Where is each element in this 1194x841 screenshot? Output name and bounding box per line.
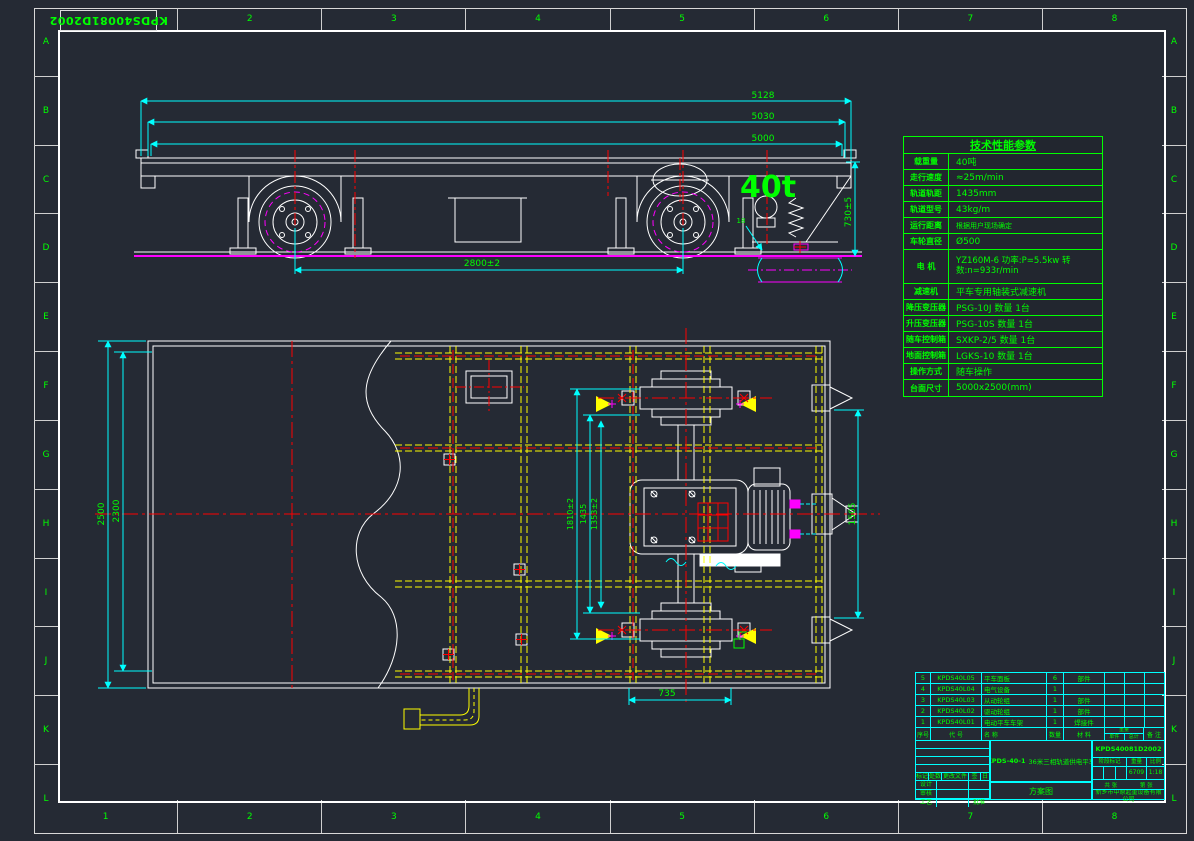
tech-row-label: 降压变压器	[904, 300, 949, 315]
sig-doc-label: 更改文件号	[942, 773, 969, 780]
bom-row-name: 电气设备	[982, 684, 1047, 694]
drawing-number: KPDS40081D2002	[1093, 741, 1164, 758]
title-block-info: KPDS40081D2002 阶段标记 重量 比例 6709 1:18 共 张 …	[1092, 740, 1165, 800]
sig-design-label: 设计	[916, 781, 937, 789]
zone-letter: I	[34, 559, 58, 628]
tech-row-value: PSG-10S 数量 1台	[949, 316, 1102, 331]
bom-row: 1KPDS40L01电动平车车架1焊接件	[915, 716, 1165, 727]
tech-row-label: 随车控制箱	[904, 332, 949, 347]
sig-sign-label: 签名	[969, 773, 981, 780]
tech-row-value: 43kg/m	[949, 202, 1102, 217]
bom-header-code: 代 号	[931, 728, 982, 740]
bom-row-note	[1145, 673, 1164, 683]
tech-row-label: 地面控制箱	[904, 348, 949, 363]
bom-header-no: 序号	[916, 728, 931, 740]
bom-header-name: 名 称	[982, 728, 1047, 740]
bom-row-w1	[1105, 695, 1125, 705]
bom-row-qty: 1	[1047, 695, 1064, 705]
tech-row-value: 5000x2500(mm)	[949, 380, 1102, 396]
stage-cells	[1093, 767, 1127, 779]
bom-row-code: KPDS40L03	[931, 695, 982, 705]
tech-row-value: 1435mm	[949, 186, 1102, 201]
zone-letter: E	[34, 283, 58, 352]
tech-row-label: 轨道轨距	[904, 186, 949, 201]
bom-row-material: 部件	[1064, 695, 1105, 705]
cad-sheet: 5128 5030 5000 2800±2 730±5 18 40t 2500 …	[0, 0, 1194, 841]
bom-row-code: KPDS40L05	[931, 673, 982, 683]
sheet-total: 共 张	[1104, 781, 1117, 789]
scheme-label: 方案图	[990, 782, 1092, 800]
bom-row-material: 部件	[1064, 706, 1105, 716]
tech-row: 走行速度≈25m/min	[904, 170, 1102, 186]
sig-date-label: 日期	[981, 773, 989, 780]
tech-table-title: 技术性能参数	[904, 137, 1102, 154]
bom-row-w1	[1105, 706, 1125, 716]
zone-number: 3	[322, 8, 466, 30]
weight-value: 6709	[1127, 767, 1147, 779]
zone-number: 5	[611, 800, 755, 833]
tech-row-label: 轨道型号	[904, 202, 949, 217]
bom-row-code: KPDS40L01	[931, 717, 982, 727]
drawing-title: 36米三相轨道供电平车	[1029, 756, 1092, 766]
tech-row-label: 走行速度	[904, 170, 949, 185]
zone-number: 4	[466, 800, 610, 833]
tech-row: 轨道轨距1435mm	[904, 186, 1102, 202]
bom-row-qty: 1	[1047, 706, 1064, 716]
signature-header-row: 标记 处数 更改文件号 签名 日期	[916, 773, 989, 781]
tech-row-value: 40吨	[949, 154, 1102, 169]
tech-row-value: SXKP-2/5 数量 1台	[949, 332, 1102, 347]
tech-row: 轨道型号43kg/m	[904, 202, 1102, 218]
company-name: 新乡市中原起重设备有限公司	[1093, 790, 1164, 803]
stage-label: 阶段标记	[1093, 758, 1127, 766]
tech-row: 操作方式随车操作	[904, 364, 1102, 380]
bom-row-no: 1	[916, 717, 931, 727]
tech-row: 车轮直径Ø500	[904, 234, 1102, 250]
zone-number: 5	[611, 8, 755, 30]
bom-row: 3KPDS40L03从动轮组1部件	[915, 694, 1165, 705]
zone-number: 2	[178, 8, 322, 30]
info-labels-row: 阶段标记 重量 比例	[1093, 758, 1164, 767]
zone-letter: J	[34, 627, 58, 696]
tech-row-value: YZ160M-6 功率:P=5.5kw 转数:n=933r/min	[949, 250, 1102, 283]
sig-check-label: 审核	[916, 790, 937, 798]
zone-letter: L	[34, 765, 58, 833]
scale-value: 1:18	[1147, 767, 1164, 779]
bom-row-w1	[1105, 717, 1125, 727]
bom-row-no: 4	[916, 684, 931, 694]
sig-approve-label: 批准	[969, 799, 989, 807]
zone-letter: F	[34, 352, 58, 421]
tech-row: 升压变压器PSG-10S 数量 1台	[904, 316, 1102, 332]
tech-table-rows: 载重量40吨走行速度≈25m/min轨道轨距1435mm轨道型号43kg/m运行…	[904, 154, 1102, 396]
zone-strip-left: ABCDEFGHIJKL	[34, 8, 58, 833]
bom-row-name: 驱动轮组	[982, 706, 1047, 716]
info-values-row: 6709 1:18	[1093, 767, 1164, 780]
bom-header-row: 序号 代 号 名 称 数量 材 料 重量 单件 总计 备 注	[915, 727, 1165, 740]
bom-row: 4KPDS40L04电气设备1	[915, 683, 1165, 694]
tech-row-value: ≈25m/min	[949, 170, 1102, 185]
zone-strip-top: 12345678	[34, 8, 1186, 30]
tech-row-label: 运行距离	[904, 218, 949, 233]
bom-row-w1	[1105, 684, 1125, 694]
tech-row: 地面控制箱LGKS-10 数量 1台	[904, 348, 1102, 364]
zone-number: 7	[899, 8, 1043, 30]
bom-header-weight: 重量 单件 总计	[1105, 728, 1144, 740]
signature-grid: 标记 处数 更改文件号 签名 日期 设计 审核 工艺 批准	[915, 740, 990, 800]
bom-row-note	[1145, 717, 1164, 727]
zone-letter: K	[34, 696, 58, 765]
sig-count-label: 处数	[929, 773, 942, 780]
title-block: 5KPDS40L05平车面板6部件4KPDS40L04电气设备13KPDS40L…	[915, 672, 1165, 800]
bom-row-note	[1145, 684, 1164, 694]
bom-row-qty: 1	[1047, 717, 1064, 727]
bom-header-qty: 数量	[1047, 728, 1064, 740]
tech-row-label: 载重量	[904, 154, 949, 169]
bom-row-qty: 1	[1047, 684, 1064, 694]
bom-row-code: KPDS40L04	[931, 684, 982, 694]
zone-letter: D	[34, 214, 58, 283]
bom-row-no: 2	[916, 706, 931, 716]
tech-row-label: 减速机	[904, 284, 949, 299]
bom-row-material: 焊接件	[1064, 717, 1105, 727]
tech-row-value: PSG-10J 数量 1台	[949, 300, 1102, 315]
zone-letter: C	[34, 146, 58, 215]
zone-number: 3	[322, 800, 466, 833]
tech-row-value: Ø500	[949, 234, 1102, 249]
bom-table: 5KPDS40L05平车面板6部件4KPDS40L04电气设备13KPDS40L…	[915, 672, 1165, 727]
tech-row-label: 车轮直径	[904, 234, 949, 249]
tech-row: 运行距离根据用户现场确定	[904, 218, 1102, 234]
bom-row-w1	[1105, 673, 1125, 683]
bom-row: 2KPDS40L02驱动轮组1部件	[915, 705, 1165, 716]
tech-row-label: 电 机	[904, 250, 949, 283]
model-number: KPDS-40-1	[990, 757, 1026, 765]
bom-row-name: 从动轮组	[982, 695, 1047, 705]
zone-number: 4	[466, 8, 610, 30]
bom-row-code: KPDS40L02	[931, 706, 982, 716]
zone-letter: H	[34, 490, 58, 559]
sig-mark-label: 标记	[916, 773, 929, 780]
tech-row: 降压变压器PSG-10J 数量 1台	[904, 300, 1102, 316]
bom-row-name: 电动平车车架	[982, 717, 1047, 727]
bom-row-no: 5	[916, 673, 931, 683]
bom-row-material: 部件	[1064, 673, 1105, 683]
bom-row-no: 3	[916, 695, 931, 705]
tech-row-value: LGKS-10 数量 1台	[949, 348, 1102, 363]
tech-row-label: 台面尺寸	[904, 380, 949, 396]
sheet-count-row: 共 张 第 张	[1093, 780, 1164, 790]
bom-row-w2	[1125, 706, 1145, 716]
bom-row-w2	[1125, 673, 1145, 683]
bom-row: 5KPDS40L05平车面板6部件	[915, 672, 1165, 683]
tech-row-value: 平车专用轴装式减速机	[949, 284, 1102, 299]
tech-row: 随车控制箱SXKP-2/5 数量 1台	[904, 332, 1102, 348]
tech-row: 电 机YZ160M-6 功率:P=5.5kw 转数:n=933r/min	[904, 250, 1102, 284]
bom-row-w2	[1125, 717, 1145, 727]
bom-row-note	[1145, 695, 1164, 705]
tech-parameters-table: 技术性能参数 载重量40吨走行速度≈25m/min轨道轨距1435mm轨道型号4…	[903, 136, 1103, 397]
zone-letter: B	[34, 77, 58, 146]
zone-strip-bottom: 12345678	[34, 800, 1186, 833]
bom-header-note: 备 注	[1144, 728, 1164, 740]
tech-row-value: 随车操作	[949, 364, 1102, 379]
bom-row-w2	[1125, 684, 1145, 694]
scale-label: 比例	[1147, 758, 1164, 766]
tech-row: 载重量40吨	[904, 154, 1102, 170]
sheet-index: 第 张	[1140, 781, 1153, 789]
tech-row-label: 操作方式	[904, 364, 949, 379]
zone-letter: G	[34, 421, 58, 490]
zone-number: 2	[178, 800, 322, 833]
tech-row-value: 根据用户现场确定	[949, 218, 1102, 233]
bom-row-w2	[1125, 695, 1145, 705]
bom-row-qty: 6	[1047, 673, 1064, 683]
bom-row-note	[1145, 706, 1164, 716]
zone-number: 6	[755, 8, 899, 30]
zone-number: 6	[755, 800, 899, 833]
weight-label: 重量	[1127, 758, 1147, 766]
tech-row-label: 升压变压器	[904, 316, 949, 331]
tech-row: 减速机平车专用轴装式减速机	[904, 284, 1102, 300]
bom-row-material	[1064, 684, 1105, 694]
sig-craft-label: 工艺	[916, 799, 937, 807]
corner-drawing-code: KPDS40081D2002	[60, 10, 157, 31]
bom-row-name: 平车面板	[982, 673, 1047, 683]
tech-row: 台面尺寸5000x2500(mm)	[904, 380, 1102, 396]
drawing-title-cell: KPDS-40-1 36米三相轨道供电平车	[990, 740, 1092, 782]
bom-header-material: 材 料	[1064, 728, 1105, 740]
